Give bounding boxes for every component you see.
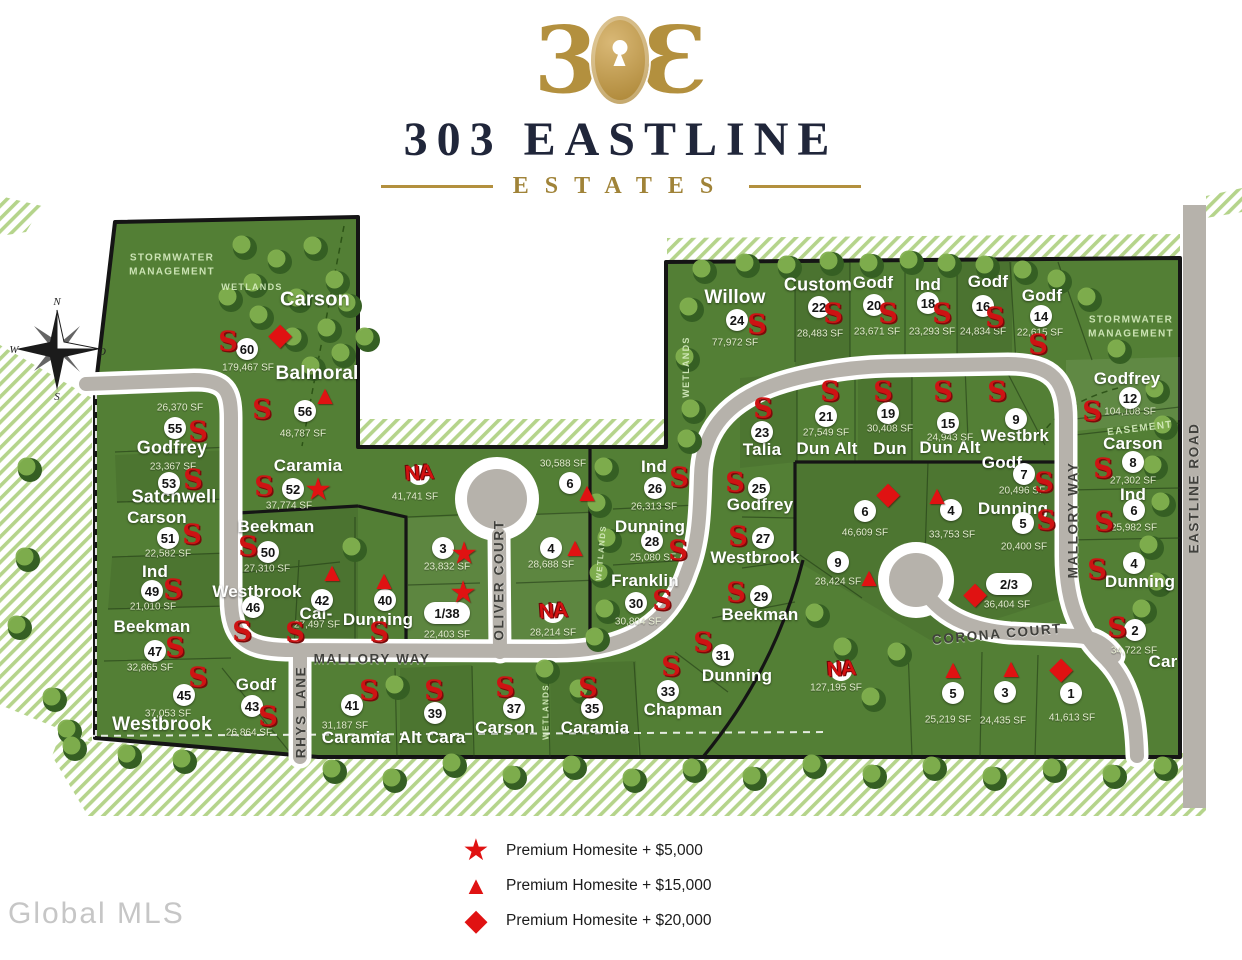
premium-triangle-icon: ▲ — [458, 874, 494, 899]
logo-mark-right: Ɛ — [642, 14, 708, 106]
logo-mark-icon: 3 Ɛ — [534, 12, 708, 108]
keyhole-icon — [591, 16, 649, 104]
premium-diamond-icon: ◆ — [458, 906, 494, 936]
eastline-road-bar — [1183, 205, 1206, 808]
legend-item-diamond: ◆ Premium Homesite + $20,000 — [458, 907, 711, 935]
logo: 3 Ɛ 303 EASTLINE ESTATES — [0, 12, 1242, 200]
legend-item-star: ★ Premium Homesite + $5,000 — [458, 837, 711, 865]
legend-label: Premium Homesite + $15,000 — [506, 877, 711, 895]
legend-label: Premium Homesite + $20,000 — [506, 912, 711, 930]
site-plan-page: 3 Ɛ 303 EASTLINE ESTATES N W O S — [0, 0, 1242, 960]
legend-item-triangle: ▲ Premium Homesite + $15,000 — [458, 872, 711, 900]
page-subtitle: ESTATES — [513, 173, 730, 200]
compass-w-label: W — [9, 344, 19, 356]
watermark: Global MLS — [8, 897, 185, 931]
compass-rose-icon: N W O S — [8, 296, 108, 402]
compass-e-label: O — [98, 346, 106, 358]
compass-s-label: S — [54, 391, 60, 402]
legend-label: Premium Homesite + $5,000 — [506, 842, 703, 860]
subtitle-rule-right — [749, 185, 861, 188]
legend: ★ Premium Homesite + $5,000 ▲ Premium Ho… — [458, 837, 711, 935]
subtitle-row: ESTATES — [381, 173, 862, 200]
subtitle-rule-left — [381, 185, 493, 188]
logo-mark-left: 3 — [534, 14, 598, 106]
compass-n-label: N — [52, 296, 61, 308]
premium-star-icon: ★ — [458, 836, 494, 866]
page-title: 303 EASTLINE — [404, 112, 839, 167]
